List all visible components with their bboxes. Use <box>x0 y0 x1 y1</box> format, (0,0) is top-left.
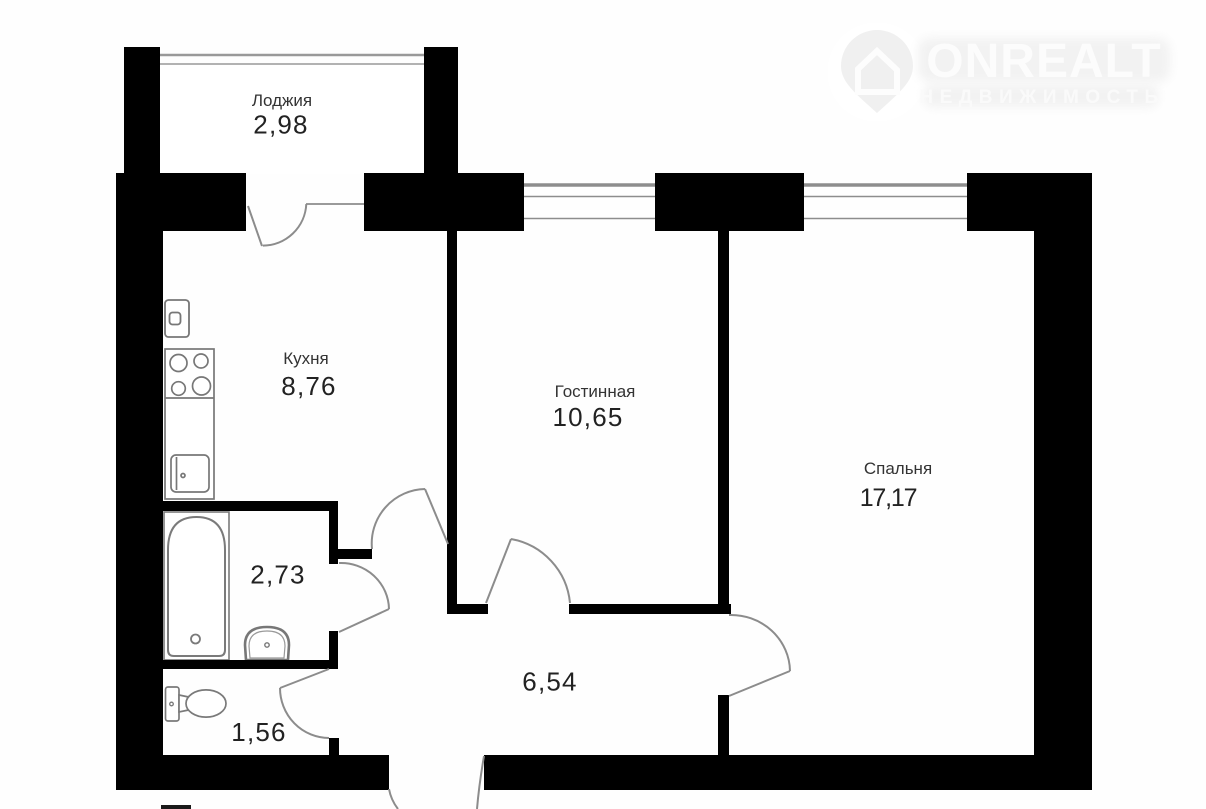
svg-text:Кухня: Кухня <box>283 349 329 368</box>
svg-text:2,73: 2,73 <box>250 560 305 590</box>
svg-text:Лоджия: Лоджия <box>252 91 312 110</box>
svg-text:6,54: 6,54 <box>522 667 577 697</box>
svg-text:Гостинная: Гостинная <box>555 382 636 401</box>
svg-text:ONREALT: ONREALT <box>926 35 1161 88</box>
svg-text:1,56: 1,56 <box>231 717 286 747</box>
svg-text:2,98: 2,98 <box>253 110 308 140</box>
svg-text:8,76: 8,76 <box>281 371 336 401</box>
svg-text:17,17: 17,17 <box>860 484 917 512</box>
svg-text:НЕДВИЖИМОСТЬ: НЕДВИЖИМОСТЬ <box>919 87 1164 108</box>
svg-text:Спальня: Спальня <box>864 459 932 478</box>
svg-text:10,65: 10,65 <box>552 402 623 432</box>
